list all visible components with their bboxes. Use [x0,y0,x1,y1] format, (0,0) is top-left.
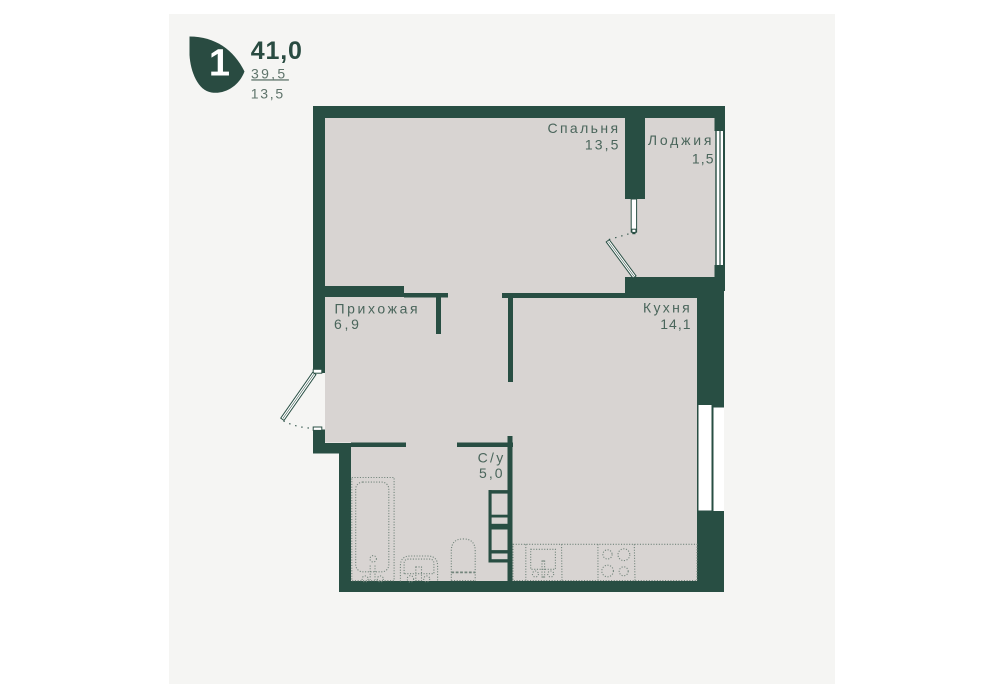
svg-text:5,0: 5,0 [479,465,504,481]
svg-text:1: 1 [209,43,230,85]
svg-text:Лоджия: Лоджия [648,132,714,148]
svg-text:Прихожая: Прихожая [335,301,421,317]
svg-text:1,5: 1,5 [692,150,715,166]
svg-text:6,9: 6,9 [334,316,362,332]
svg-text:14,1: 14,1 [660,316,691,332]
svg-text:Спальня: Спальня [547,120,620,136]
svg-text:С/у: С/у [478,450,506,466]
svg-text:13,5: 13,5 [585,136,621,152]
svg-text:13,5: 13,5 [251,86,285,102]
svg-text:39,5: 39,5 [251,65,287,81]
svg-text:41,0: 41,0 [251,37,303,65]
svg-text:Кухня: Кухня [643,299,692,315]
